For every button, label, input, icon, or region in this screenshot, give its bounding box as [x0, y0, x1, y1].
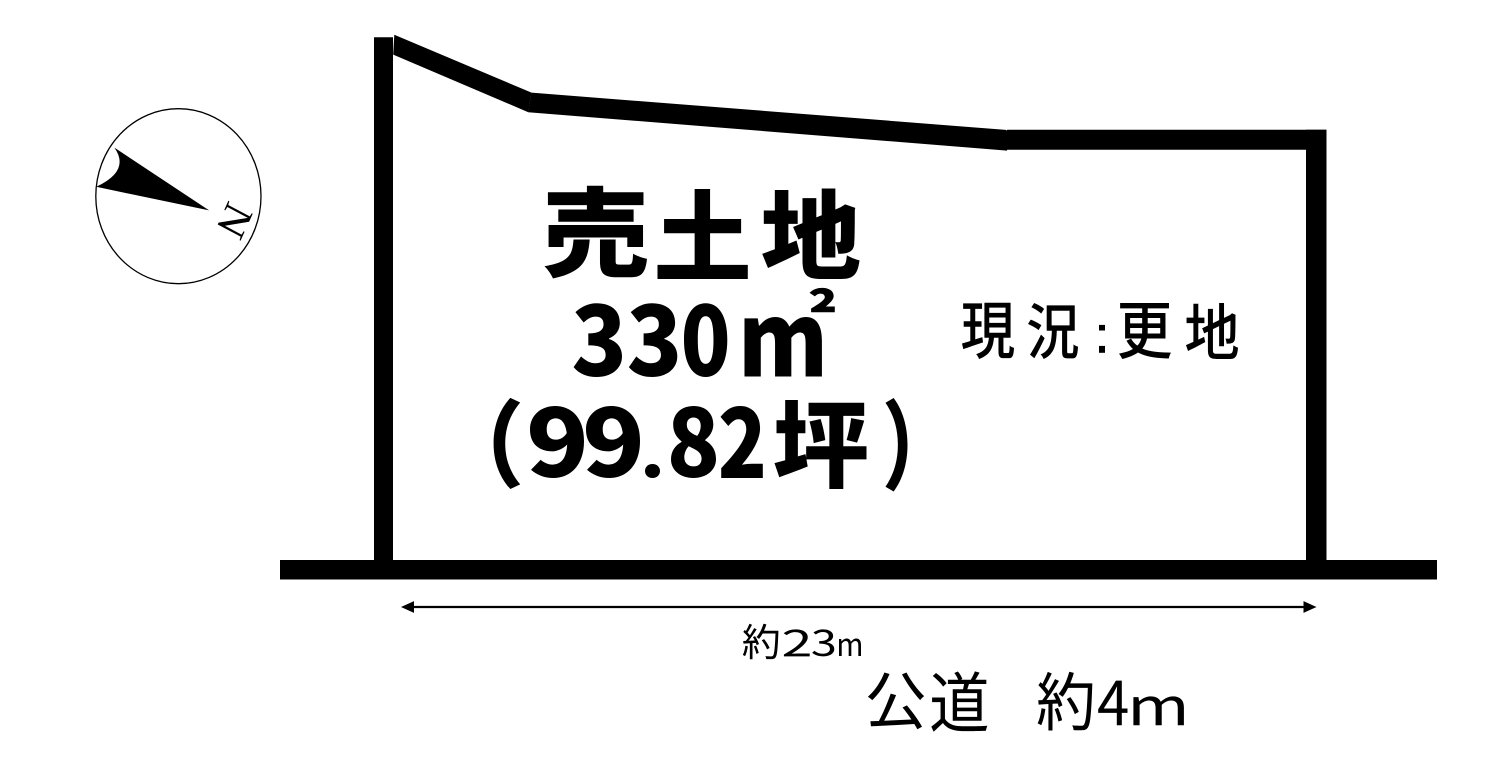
svg-text:N: N [207, 195, 261, 246]
